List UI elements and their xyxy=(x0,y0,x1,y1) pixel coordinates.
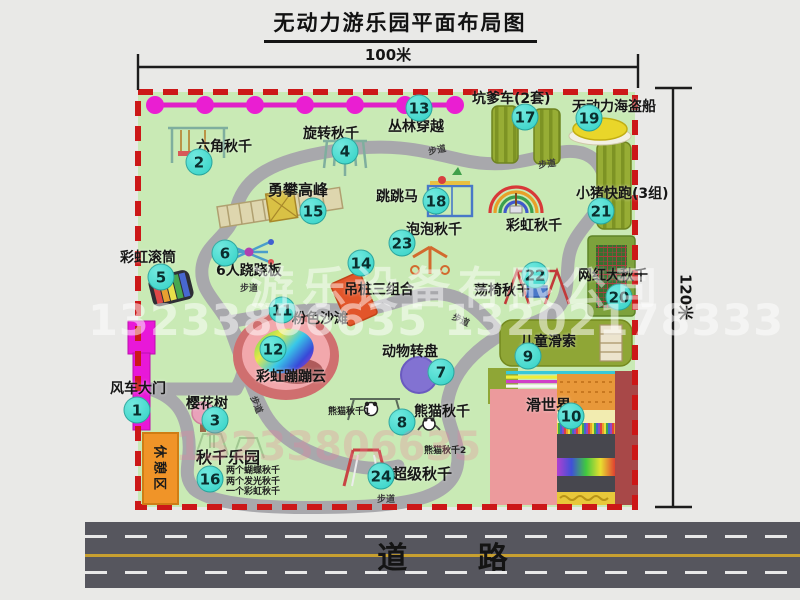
poi-label-12: 彩虹蹦蹦云 xyxy=(256,366,326,386)
width-dimension-label: 100米 xyxy=(365,44,411,65)
road-label: 道 路 xyxy=(85,533,800,577)
trail-label-2: 步道 xyxy=(537,156,557,171)
poi-badge-4: 4 xyxy=(332,138,359,165)
poi-label-20: 网红大秋千 xyxy=(578,265,648,285)
swing-park-detail-1: 两个蝴蝶秋千 xyxy=(226,466,280,477)
height-dimension-label: 120米 xyxy=(676,274,697,320)
poi-badge-18: 18 xyxy=(423,188,450,215)
poi-label-22: 荡椅秋千 xyxy=(474,280,530,300)
poi-badge-1: 1 xyxy=(124,397,151,424)
trail-label-5: 步道 xyxy=(377,492,395,505)
poi-label-23: 泡泡秋千 xyxy=(406,219,462,239)
poi-badge-3: 3 xyxy=(202,407,229,434)
poi-badge-20: 20 xyxy=(606,284,633,311)
trail-label-3: 步道 xyxy=(240,281,258,294)
poi-badge-14: 14 xyxy=(348,250,375,277)
slide-world-icon xyxy=(488,368,638,505)
park-layout-plan: 无动力游乐园平面布局图 100米 120米 休憩区 风车大门 六角秋千 樱花树 … xyxy=(0,0,800,600)
poi-badge-21: 21 xyxy=(588,198,615,225)
swing-park-detail-3: 一个彩虹秋千 xyxy=(226,487,280,498)
poi-label-11: 粉色沙滩 xyxy=(292,308,348,328)
poi-label-7: 动物转盘 xyxy=(382,341,438,361)
poi-badge-22: 22 xyxy=(522,262,549,289)
poi-badge-5: 5 xyxy=(148,264,175,291)
poi-badge-9: 9 xyxy=(515,343,542,370)
poi-label-14: 吊桩三组合 xyxy=(344,279,414,299)
poi-badge-12: 12 xyxy=(260,336,287,363)
poi-label-1: 风车大门 xyxy=(110,378,166,398)
panda-swing-2-label: 熊猫秋千2 xyxy=(424,443,466,456)
swing-park-details: 两个蝴蝶秋千 两个发光秋千 一个彩虹秋千 xyxy=(226,466,280,498)
poi-badge-23: 23 xyxy=(389,230,416,257)
poi-label-5: 彩虹滚筒 xyxy=(120,247,176,267)
poi-badge-15: 15 xyxy=(300,198,327,225)
poi-label-17: 坑爹车(2套) xyxy=(472,88,551,108)
poi-badge-8: 8 xyxy=(389,409,416,436)
poi-label-24: 超级秋千 xyxy=(392,463,452,484)
poi-label-15: 勇攀高峰 xyxy=(268,179,328,200)
poi-badge-10: 10 xyxy=(558,403,585,430)
page-title: 无动力游乐园平面布局图 xyxy=(0,7,800,43)
poi-badge-6: 6 xyxy=(212,240,239,267)
poi-badge-19: 19 xyxy=(576,105,603,132)
poi-badge-13: 13 xyxy=(406,95,433,122)
swing-park-detail-2: 两个发光秋千 xyxy=(226,477,280,488)
poi-badge-11: 11 xyxy=(269,297,296,324)
rainbow-swing-label: 彩虹秋千 xyxy=(506,215,562,235)
poi-label-8: 熊猫秋千 xyxy=(414,401,470,421)
poi-label-16: 秋千乐园 xyxy=(196,444,260,468)
poi-badge-16: 16 xyxy=(197,466,224,493)
panda-swing-1-label: 熊猫秋千1 xyxy=(328,404,370,417)
poi-badge-17: 17 xyxy=(512,104,539,131)
poi-badge-7: 7 xyxy=(428,359,455,386)
poi-label-21: 小猪快跑(3组) xyxy=(576,183,669,203)
poi-badge-24: 24 xyxy=(368,463,395,490)
road: 道 路 xyxy=(85,522,800,588)
poi-badge-2: 2 xyxy=(186,149,213,176)
poi-label-18: 跳跳马 xyxy=(376,186,418,206)
rest-area-block: 休憩区 xyxy=(142,432,179,505)
